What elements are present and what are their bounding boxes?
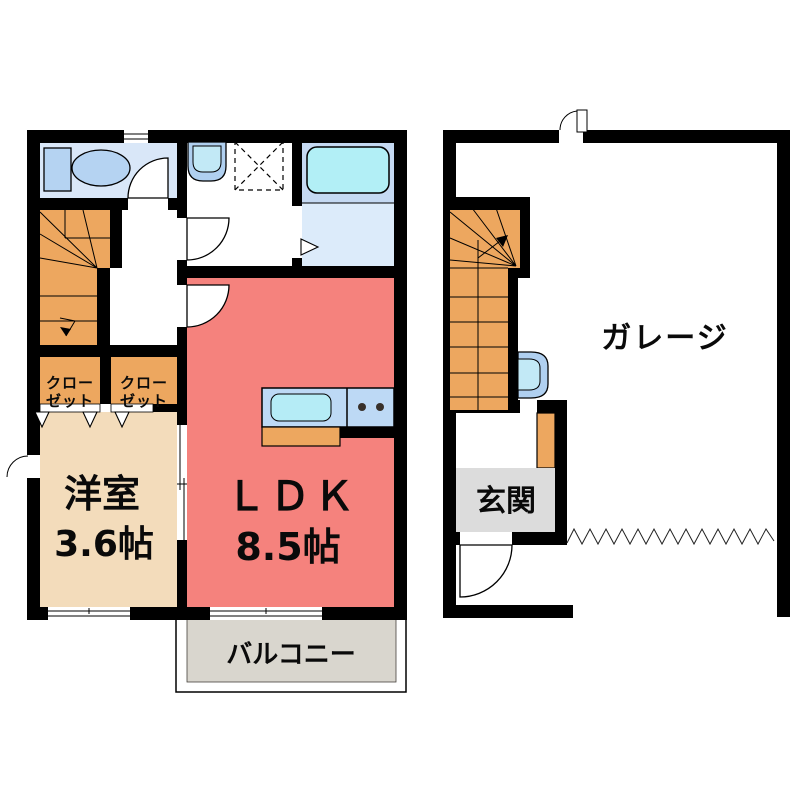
stove-burner-icon: [358, 403, 366, 411]
entrance-label: 玄関: [476, 484, 536, 519]
first-floor-plan: ガレージ 玄関: [443, 110, 790, 618]
floor-plan-page: クロー ゼット クロー ゼット 洋室 3.6帖 ＬＤＫ 8.5帖 バルコニー: [0, 0, 800, 800]
kitchen-cabinet-icon: [262, 427, 340, 446]
balcony-label: バルコニー: [226, 640, 355, 670]
second-floor-plan: クロー ゼット クロー ゼット 洋室 3.6帖 ＬＤＫ 8.5帖 バルコニー: [7, 128, 407, 692]
utility-basin-icon: [518, 352, 548, 398]
sliding-door-icon: [177, 425, 187, 540]
toilet-icon: [72, 150, 130, 186]
entry-door-icon: [460, 545, 512, 597]
stairs-2f-upper: [40, 210, 110, 268]
window-western-left: [7, 455, 40, 478]
garage-label: ガレージ: [601, 321, 728, 356]
stove-burner-icon: [376, 403, 384, 411]
bathroom-floor: [302, 203, 394, 266]
window-ldk-bottom: [210, 607, 322, 620]
closet-right-label-1: クロー: [120, 374, 168, 392]
stairs-2f-lower: [40, 268, 97, 345]
vanity-icon: [44, 148, 71, 191]
kitchen-sink-icon: [271, 394, 331, 421]
garage-shutter-icon: [567, 529, 774, 544]
stairs-1f-lower: [450, 268, 508, 410]
stairs-1f-upper: [450, 210, 520, 268]
floor-plan-canvas: クロー ゼット クロー ゼット 洋室 3.6帖 ＬＤＫ 8.5帖 バルコニー: [0, 0, 800, 800]
western-room-label: 洋室: [64, 472, 140, 516]
ldk-size: 8.5帖: [235, 525, 340, 569]
closet-left-label-2: ゼット: [46, 392, 94, 410]
window-western-bottom: [48, 607, 130, 620]
ldk-label: ＬＤＫ: [226, 474, 358, 520]
bathtub-icon: [307, 147, 389, 193]
window-top-toilet: [124, 128, 148, 143]
shoe-cabinet-icon: [537, 413, 555, 468]
closet-left-label-1: クロー: [46, 374, 94, 392]
back-door-icon: [559, 110, 587, 143]
closet-right-label-2: ゼット: [120, 392, 168, 410]
western-room-size: 3.6帖: [54, 524, 154, 565]
